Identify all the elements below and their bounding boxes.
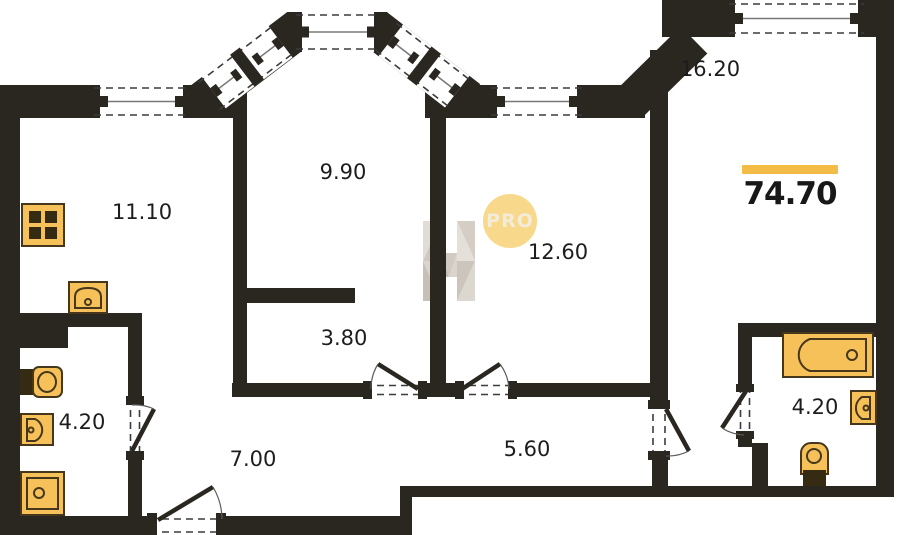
door-closet [363, 364, 427, 399]
total-area: 74.70 [742, 165, 838, 210]
washing-machine-icon [21, 472, 64, 515]
window-room-1620 [729, 0, 864, 37]
door-bath-left [126, 396, 154, 460]
sink-right-icon [851, 391, 876, 424]
room-label-1260: 12.60 [528, 240, 588, 264]
room-label-990: 9.90 [320, 160, 367, 184]
room-label-1620: 16.20 [680, 57, 740, 81]
room-label-kitchen: 11.10 [112, 200, 172, 224]
bay-window-top [296, 12, 380, 52]
total-area-value: 74.70 [742, 179, 838, 210]
washbasin-icon [21, 414, 53, 445]
pro-logo: PRO [483, 194, 537, 248]
room-label-bath-left: 4.20 [59, 410, 106, 434]
stove-icon [22, 204, 64, 246]
room-label-hall-560: 5.60 [504, 437, 551, 461]
room-label-closet: 3.80 [321, 326, 368, 350]
window-kitchen [94, 85, 189, 118]
room-label-hall-700: 7.00 [230, 447, 277, 471]
door-bath-right [722, 384, 754, 439]
door-room-1260 [455, 364, 517, 399]
door-room-1620 [648, 400, 689, 460]
room-label-bath-right: 4.20 [792, 395, 839, 419]
kitchen-sink-icon [69, 282, 107, 313]
floor-plan: 11.10 9.90 12.60 16.20 3.80 4.20 7.00 5.… [0, 0, 900, 535]
floor-plan-svg [0, 0, 900, 535]
entrance-door [147, 487, 226, 535]
toilet-right-icon [801, 443, 828, 486]
bathtub-icon [783, 333, 873, 377]
window-room-1260 [491, 85, 583, 118]
toilet-left-icon [20, 367, 62, 397]
total-area-accent-bar [742, 165, 838, 174]
